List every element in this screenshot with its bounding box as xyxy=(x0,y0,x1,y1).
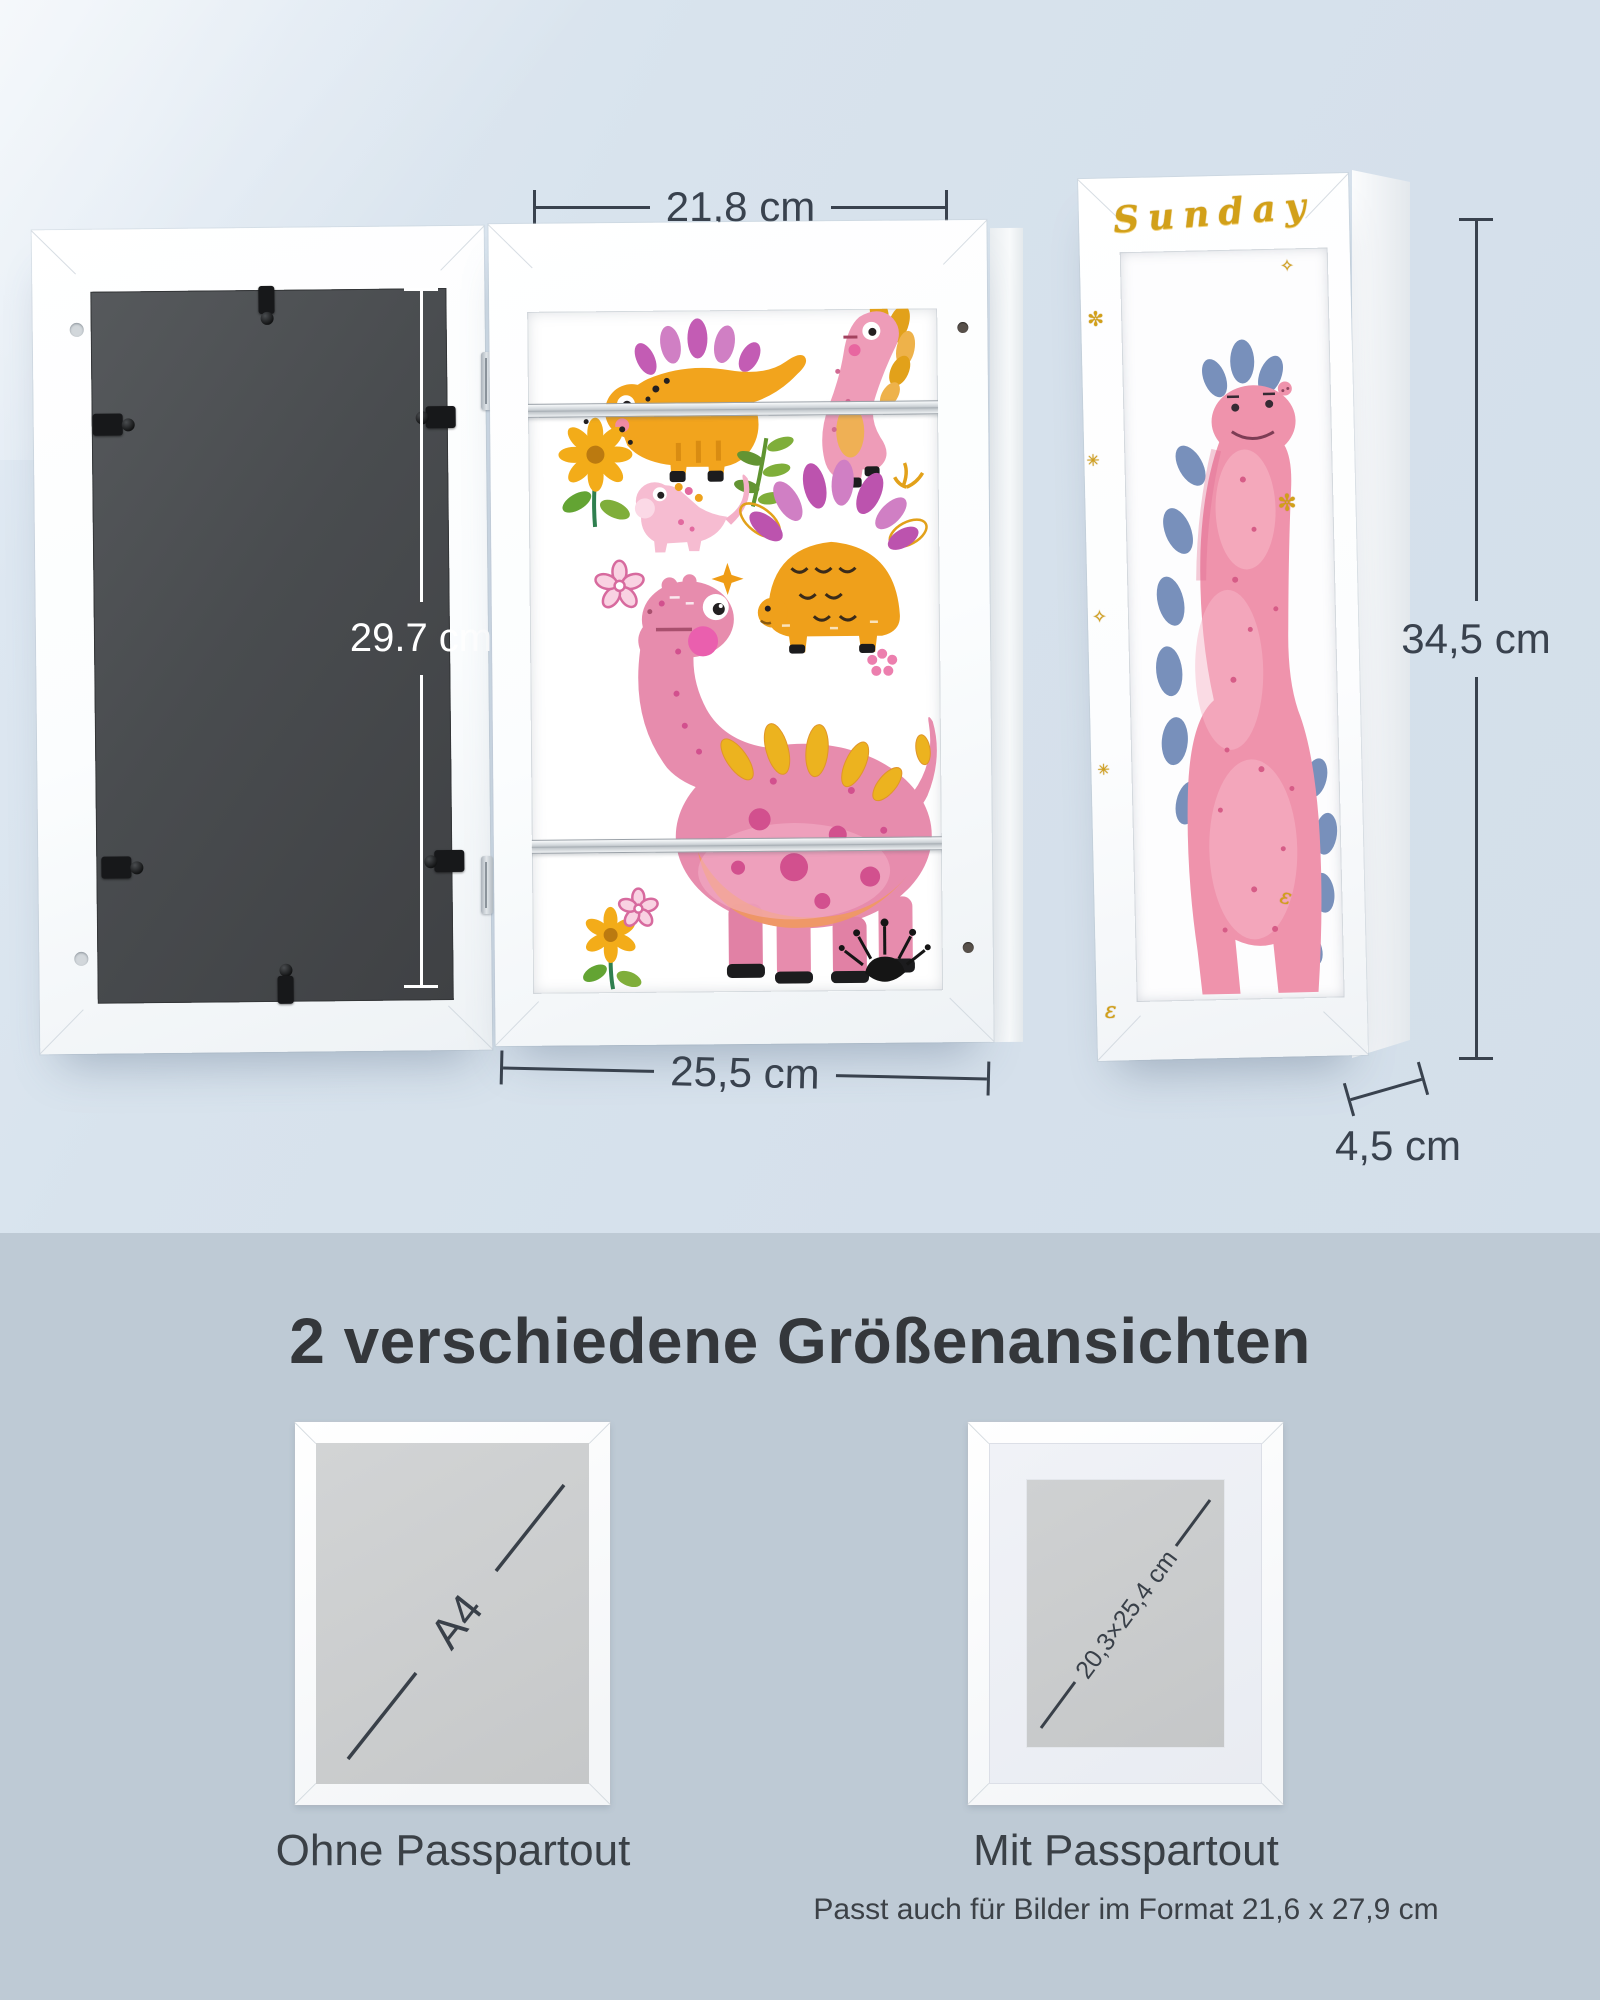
frame-miter xyxy=(40,1009,84,1054)
dimension-line xyxy=(831,206,945,209)
dino-longneck-pink xyxy=(821,308,919,488)
dimension-depth xyxy=(1343,1062,1429,1117)
watercolor-dino-art: ✧ ✼ ε xyxy=(1120,248,1345,1003)
frame-miter xyxy=(1262,1422,1284,1444)
dimension-side-height: 34,5 cm xyxy=(1398,218,1554,1060)
dimension-line xyxy=(1475,221,1478,601)
flower-pink-outline xyxy=(593,561,645,611)
dimension-tick xyxy=(404,985,438,988)
dimension-label-outer-width: 25,5 cm xyxy=(654,1047,836,1099)
frame-miter xyxy=(448,1006,493,1050)
frame-miter xyxy=(967,1422,989,1444)
dimension-outer-width: 25,5 cm xyxy=(500,1043,991,1102)
clip-screw xyxy=(122,418,135,431)
dimension-label-depth: 4,5 cm xyxy=(1318,1122,1478,1170)
dimension-line xyxy=(420,291,423,602)
side-frame: Sunday ✼ ✳ ✧ ✳ ε xyxy=(1088,168,1414,1062)
flower-yellow xyxy=(558,417,633,527)
frame-miter xyxy=(31,230,76,274)
gold-star-icon: ✼ xyxy=(1277,490,1297,516)
frame-miter xyxy=(440,226,484,271)
magnet-dot xyxy=(963,942,974,953)
front-frame xyxy=(488,220,993,1046)
frame-miter xyxy=(495,1001,539,1046)
diagonal-size-label: 20,3×25,4 cm xyxy=(1070,1545,1183,1684)
kids-dino-artwork xyxy=(527,308,943,994)
diagonal-size-label: A4 xyxy=(421,1585,493,1658)
frame-miter xyxy=(488,224,533,268)
mounting-clip xyxy=(258,286,274,314)
size-views-section: 2 verschiedene Größenansichten A4 Ohne P… xyxy=(0,1233,1600,2000)
gold-sparkle-icon: ✧ xyxy=(1092,607,1108,628)
gold-sparkle-icon: ✧ xyxy=(1280,256,1295,276)
baby-dino-pink xyxy=(635,474,750,552)
frame-opening: A4 xyxy=(316,1443,589,1784)
mini-frame-a4: A4 xyxy=(295,1422,610,1805)
frame-side-edge xyxy=(990,228,1023,1042)
mounting-clip xyxy=(278,976,294,1004)
frame-miter xyxy=(589,1422,611,1444)
frame-miter xyxy=(1097,1015,1141,1061)
diagonal-mat-size: 20,3×25,4 cm xyxy=(1027,1480,1224,1747)
watercolor-dino-svg xyxy=(1120,248,1345,1003)
caption-without-mat: Ohne Passpartout xyxy=(173,1826,733,1876)
dimension-tick xyxy=(987,1061,991,1095)
hanging-hole xyxy=(74,952,88,966)
dimension-line xyxy=(420,675,423,986)
dimension-label-back-height: 29.7 cm xyxy=(350,602,492,675)
mounting-clip xyxy=(101,856,131,878)
hinge xyxy=(481,856,493,914)
sunday-handwriting: Sunday xyxy=(1078,182,1350,244)
dimension-tick xyxy=(1459,1057,1493,1060)
dimension-label-side-height: 34,5 cm xyxy=(1401,601,1550,677)
passepartout-mat: 20,3×25,4 cm xyxy=(989,1443,1262,1784)
mini-frame-mat: 20,3×25,4 cm xyxy=(968,1422,1283,1805)
dimension-line xyxy=(1350,1077,1422,1100)
gold-star-icon: ✼ xyxy=(1087,307,1104,331)
dimension-scene: 21,8 cm xyxy=(0,0,1600,1233)
frame-miter xyxy=(1262,1783,1284,1805)
mounting-clip xyxy=(93,413,123,435)
gold-asterisk-icon: ✳ xyxy=(1086,451,1100,470)
section-heading: 2 verschiedene Größenansichten xyxy=(0,1304,1600,1378)
gold-branch-doodle xyxy=(895,463,923,487)
product-infographic: 21,8 cm xyxy=(0,0,1600,2000)
mat-format-note: Passt auch für Bilder im Format 21,6 x 2… xyxy=(766,1893,1486,1927)
dimension-line xyxy=(836,1074,987,1080)
dimension-line xyxy=(503,1066,654,1072)
frame-miter xyxy=(967,1783,989,1805)
frame-miter xyxy=(943,220,987,265)
frame-miter xyxy=(589,1783,611,1805)
stegosaurus-orange xyxy=(604,317,807,482)
clip-screw xyxy=(130,861,143,874)
dimension-line xyxy=(1475,677,1478,1057)
dimension-tick xyxy=(945,190,948,224)
dimension-line xyxy=(536,206,650,209)
diagonal-a4: A4 xyxy=(316,1443,589,1784)
hanging-hole xyxy=(70,323,84,337)
frame-miter xyxy=(1323,1011,1369,1055)
clip-screw xyxy=(261,312,274,325)
frame-miter xyxy=(294,1422,316,1444)
gold-asterisk-icon: ✳ xyxy=(1097,761,1110,779)
dimension-back-height: 29.7 cm xyxy=(341,288,501,988)
mat-opening: 20,3×25,4 cm xyxy=(1027,1480,1224,1747)
frame-miter xyxy=(949,998,994,1042)
gold-squiggle-icon: ε xyxy=(1105,999,1117,1024)
caption-with-mat: Mit Passpartout xyxy=(846,1826,1406,1876)
frame-miter xyxy=(294,1783,316,1805)
side-frame-face: Sunday ✼ ✳ ✧ ✳ ε xyxy=(1078,173,1368,1061)
magnet-dot xyxy=(957,322,968,333)
